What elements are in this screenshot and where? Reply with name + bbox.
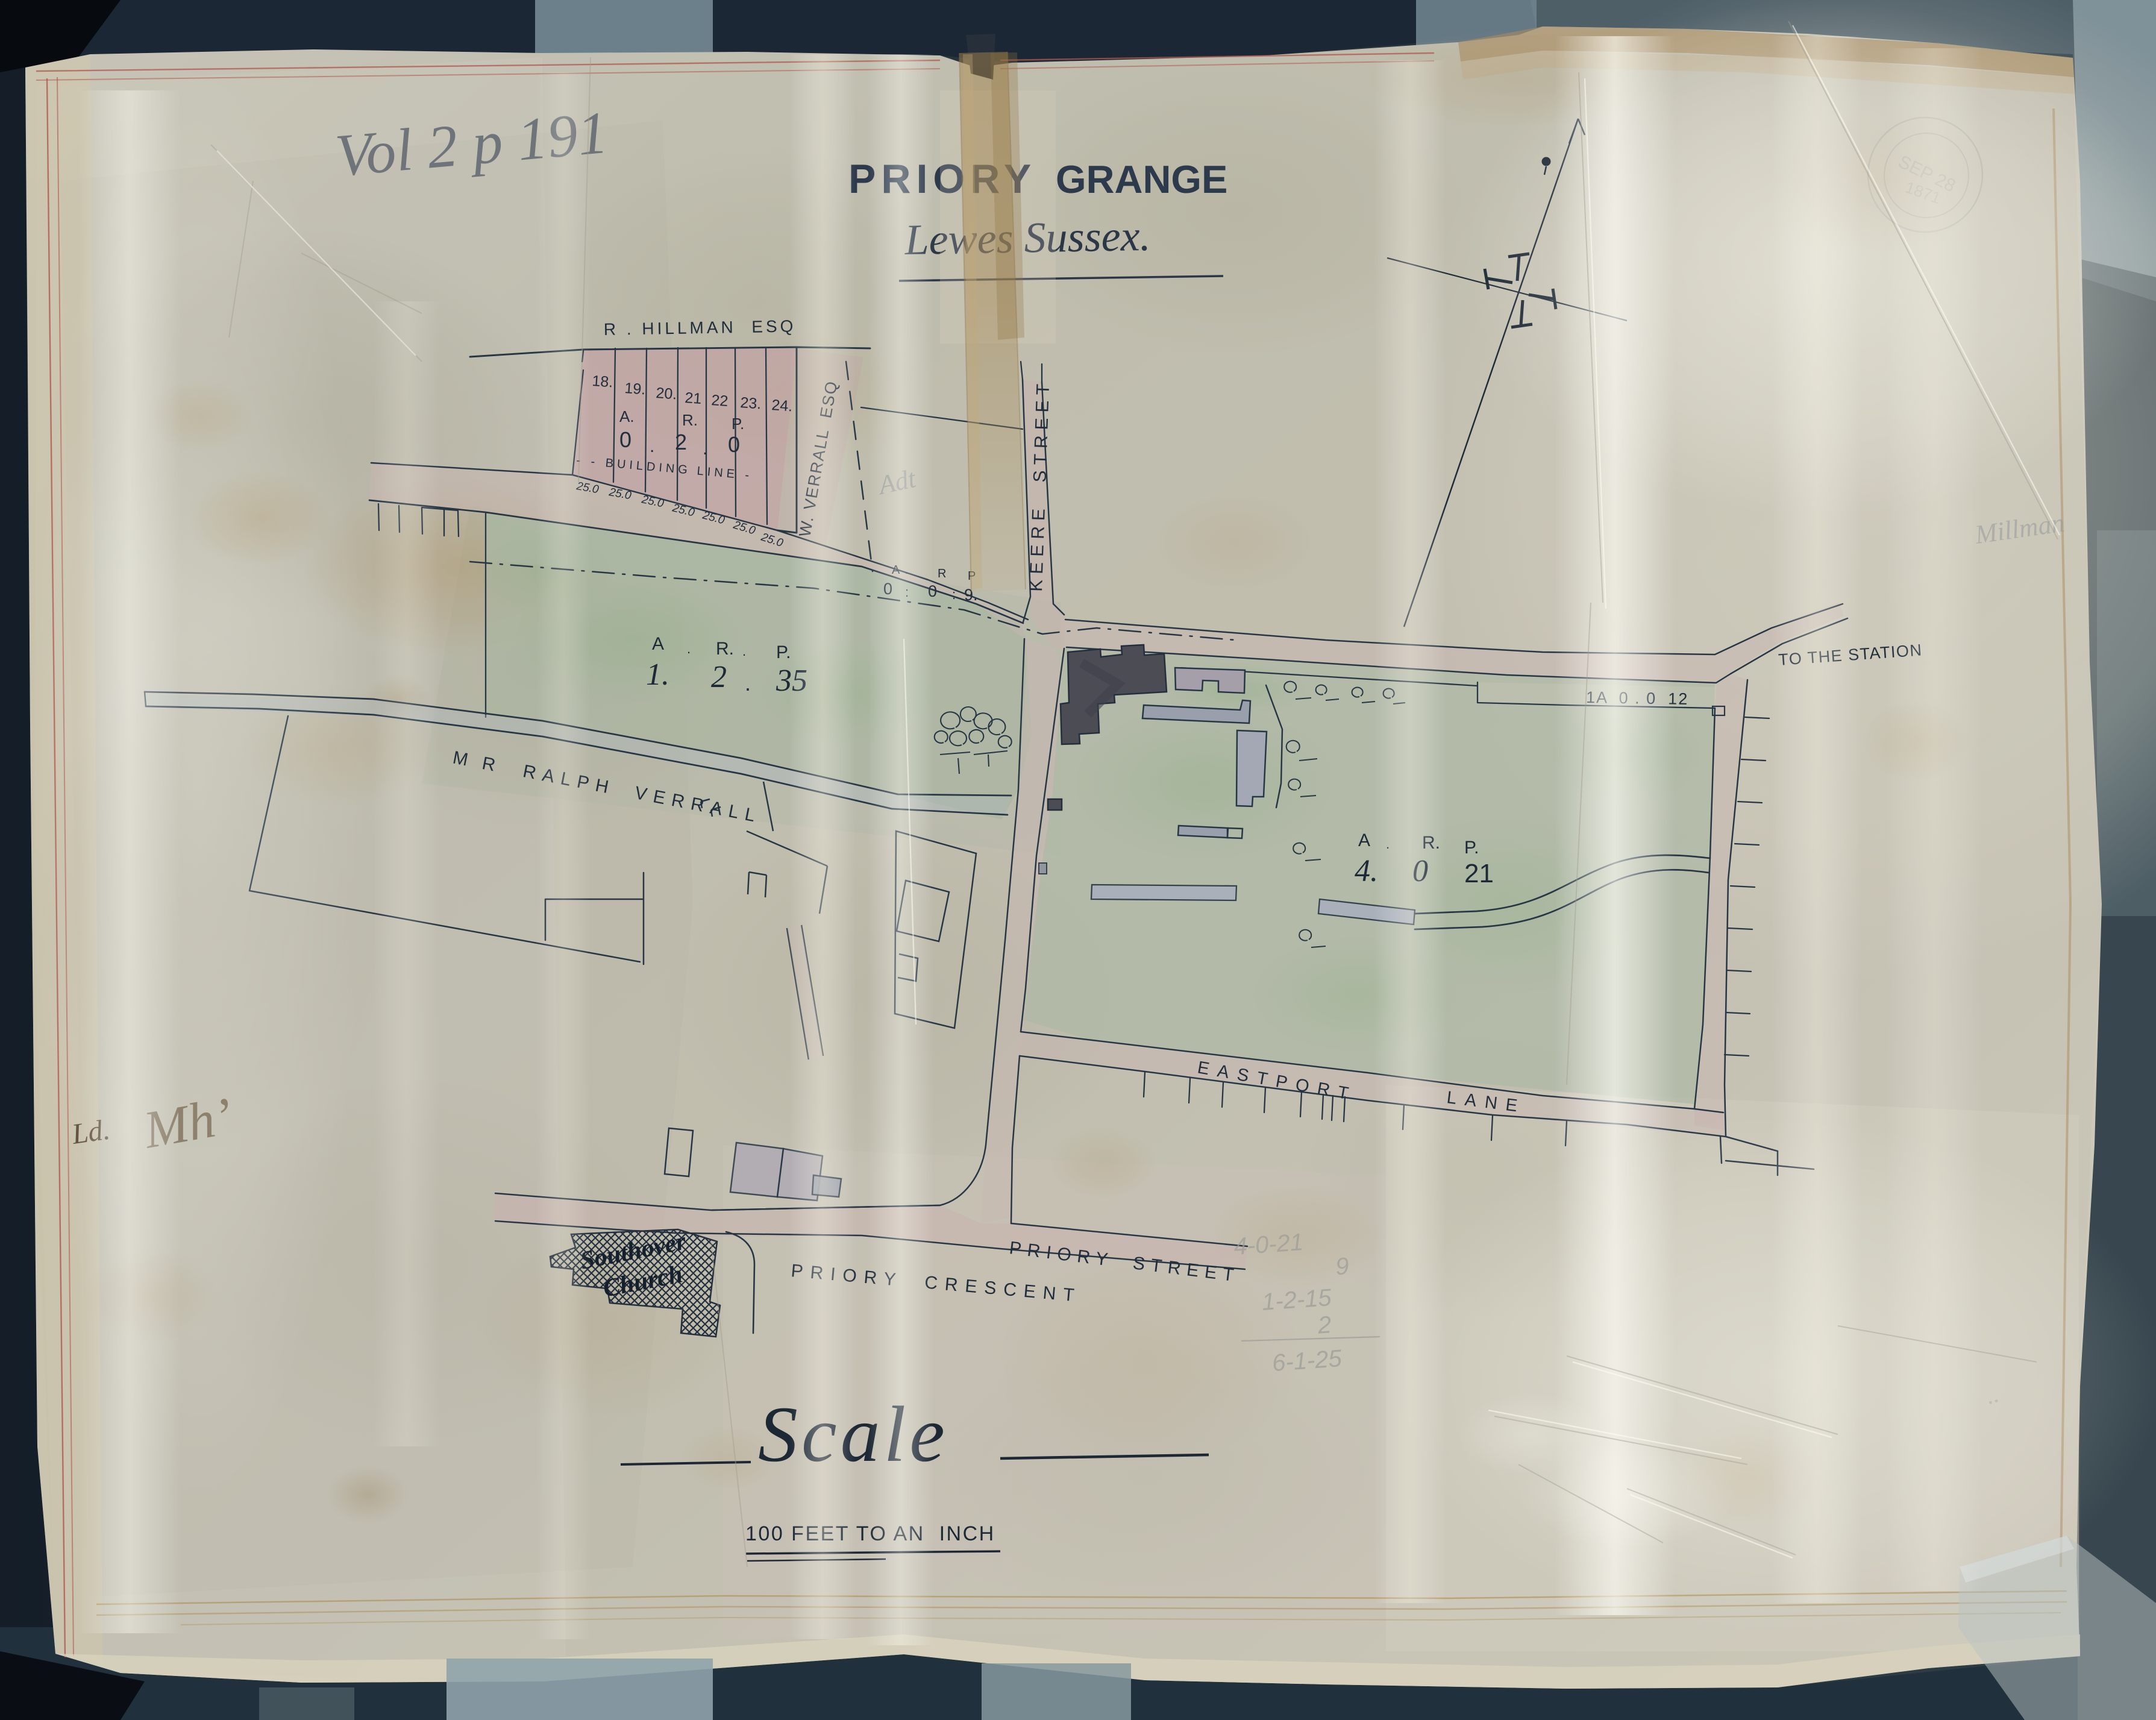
svg-text:GRANGE: GRANGE [1056,157,1227,201]
svg-text:0: 0 [728,432,740,457]
svg-text:21: 21 [1464,859,1494,888]
svg-text:.: . [703,439,707,459]
svg-text:1.: 1. [646,658,669,692]
svg-text:2: 2 [1317,1311,1332,1339]
svg-text:2: 2 [675,430,687,454]
svg-text:A.: A. [619,407,635,425]
svg-text:0: 0 [619,427,631,452]
svg-text:21: 21 [685,389,703,407]
svg-text:.: . [742,644,746,659]
svg-text:.: . [687,641,691,656]
svg-text::: : [952,587,956,602]
svg-text:9: 9 [1335,1253,1350,1280]
svg-text:23.: 23. [740,394,762,412]
svg-text:6-1-25: 6-1-25 [1271,1345,1343,1376]
svg-text:R . HILLMAN ESQ: R . HILLMAN ESQ [604,316,797,339]
svg-text:22: 22 [711,392,729,410]
svg-text:P.: P. [776,642,791,662]
svg-text:4-0-21: 4-0-21 [1233,1229,1304,1260]
svg-text:A: A [1358,830,1370,850]
svg-text:A: A [652,634,664,654]
svg-text:R.: R. [682,411,698,429]
svg-text:P.: P. [732,415,744,433]
svg-text:2: 2 [711,660,727,694]
svg-text:P.: P. [1464,838,1479,858]
svg-text:19.: 19. [624,380,647,398]
svg-text:1-2-15: 1-2-15 [1261,1284,1333,1316]
svg-text:R: R [938,567,946,580]
svg-text:20.: 20. [656,384,678,403]
svg-text:R.: R. [716,639,734,659]
svg-text:.: . [745,671,751,695]
svg-text:18.: 18. [592,372,614,391]
svg-text:.: . [650,436,654,456]
